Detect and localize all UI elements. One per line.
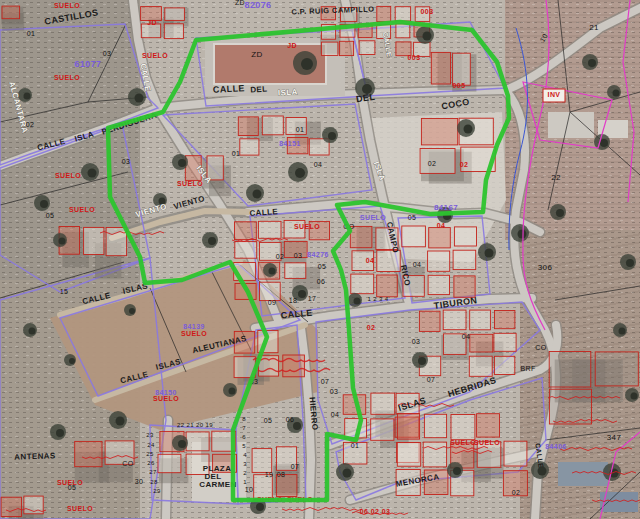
map-label: 04 — [462, 333, 471, 340]
map-label: 84139 — [183, 323, 204, 330]
map-label: 23 — [146, 432, 154, 438]
map-label: 06 02 03 — [360, 508, 390, 515]
map-label: 05 — [46, 212, 55, 219]
map-label: 05 — [318, 263, 327, 270]
map-label: TIBURON — [433, 295, 478, 311]
map-label: 02 — [460, 161, 469, 168]
map-label: 27 — [149, 469, 157, 475]
map-label: SUELO — [294, 223, 320, 230]
map-label: 82076 — [244, 0, 271, 10]
map-label: 3 — [243, 461, 247, 467]
shed-roof — [548, 112, 594, 138]
map-label: SUELO — [474, 439, 500, 446]
map-label: CALLE — [249, 207, 278, 218]
map-label: 07 — [321, 378, 330, 385]
map-label: 6 — [242, 434, 246, 440]
map-label: 02 — [276, 253, 285, 260]
map-label: 06 — [317, 278, 326, 285]
map-label: 8 — [242, 416, 246, 422]
map-label: 84150 — [155, 389, 176, 396]
map-label: CASTILLOS — [44, 7, 100, 26]
map-label: SUELO — [142, 52, 168, 59]
map-label: 06 — [286, 416, 295, 423]
map-label: 84276 — [307, 251, 328, 258]
map-label: 02 — [26, 121, 35, 128]
map-label: 02 — [512, 489, 521, 496]
map-label: 15 — [60, 288, 69, 295]
map-label: 29 — [153, 488, 161, 494]
map-label: SUELO — [54, 2, 80, 9]
map-label: SUELO — [55, 172, 81, 179]
map-label: SUELO — [153, 395, 179, 402]
map-label: 22 — [551, 173, 561, 182]
map-label: 04 — [314, 161, 323, 168]
map-label: DEL — [355, 92, 376, 105]
map-label: 7 — [242, 425, 246, 431]
map-label: C.P. RUIG CAMPILLO — [291, 5, 374, 17]
map-label: 4 — [243, 452, 247, 458]
map-label: 03 — [330, 388, 339, 395]
map-label: 08 — [277, 471, 286, 478]
map-label: 18 — [289, 297, 298, 304]
cadastral-map-view[interactable]: CASTILLOSCALLEISLAPERDIGUERACALLEDELDELC… — [0, 0, 640, 519]
map-label: 03 — [122, 158, 131, 165]
map-label: 01 — [296, 126, 305, 133]
map-label: 30 — [135, 478, 144, 485]
map-label: SUELO — [177, 180, 203, 187]
map-label: DEL — [250, 85, 268, 95]
map-label: 1 2 3 4 — [367, 296, 388, 302]
map-label: 03 — [103, 50, 112, 57]
map-label: 1 — [243, 479, 247, 485]
map-label: 5 — [242, 443, 246, 449]
map-label: SUELO — [67, 505, 93, 512]
map-label: CO — [535, 344, 546, 351]
map-label: 61077 — [74, 59, 101, 69]
map-label: ZD — [251, 50, 262, 59]
map-label: JD — [147, 19, 157, 26]
map-label: 04 — [366, 257, 375, 264]
map-label: 10 — [245, 486, 254, 493]
map-label: 02 — [367, 324, 376, 331]
map-label: 10 — [539, 32, 549, 43]
map-overlay-svg: CASTILLOSCALLEISLAPERDIGUERACALLEDELDELC… — [0, 0, 640, 519]
map-label: 25 — [146, 451, 154, 457]
map-label: 01 — [232, 150, 241, 157]
map-label: 04 — [413, 261, 422, 268]
map-label: 07 — [291, 463, 300, 470]
map-label: 26 — [147, 460, 155, 466]
map-label: 05 — [408, 214, 417, 221]
map-label: 21 — [589, 23, 599, 32]
map-label: CALLE — [213, 83, 245, 95]
map-label: 24 — [147, 442, 155, 448]
map-label: 28 — [150, 479, 158, 485]
map-label: 347 — [607, 433, 622, 442]
map-label: COCO — [441, 97, 471, 112]
map-label: 03 — [294, 252, 303, 259]
map-label: 01 — [27, 30, 36, 37]
map-label: 17 — [308, 295, 317, 302]
map-label: INV — [548, 91, 561, 98]
map-label: 01 — [351, 442, 360, 449]
map-label: CO — [122, 460, 133, 467]
map-label: 04 — [437, 222, 446, 229]
map-label: 02 — [428, 160, 437, 167]
blue-roof-building — [558, 462, 608, 486]
map-label: 19 — [265, 471, 274, 478]
map-label: ANTENAS — [14, 451, 56, 461]
map-label: 84167 — [434, 203, 458, 212]
map-label: SUELO — [69, 206, 95, 213]
map-label: 04 — [331, 411, 340, 418]
map-label: SUELO — [360, 214, 386, 221]
map-label: 22 21 20 19 — [177, 422, 213, 428]
map-label: JD — [287, 42, 297, 49]
map-label: 84151 — [279, 140, 300, 147]
map-label: 2 — [243, 470, 247, 476]
map-label: ISLA — [278, 87, 298, 97]
map-label: 09 — [268, 299, 277, 306]
map-label: CALLE — [382, 31, 393, 57]
map-label: 003 — [421, 8, 434, 15]
map-label: 003 — [408, 54, 421, 61]
map-label: 03 — [412, 338, 421, 345]
map-label: 05 — [264, 417, 273, 424]
map-label: SUELO — [181, 330, 207, 337]
map-label: BRF — [520, 365, 535, 372]
map-label: SUELO — [450, 439, 476, 446]
map-label: 306 — [538, 263, 553, 272]
map-label: 84406 — [545, 443, 566, 450]
map-label: 07 — [427, 376, 436, 383]
map-label: SUELO — [57, 479, 83, 486]
map-label: SUELO — [54, 74, 80, 81]
map-label: 005 — [453, 82, 466, 89]
